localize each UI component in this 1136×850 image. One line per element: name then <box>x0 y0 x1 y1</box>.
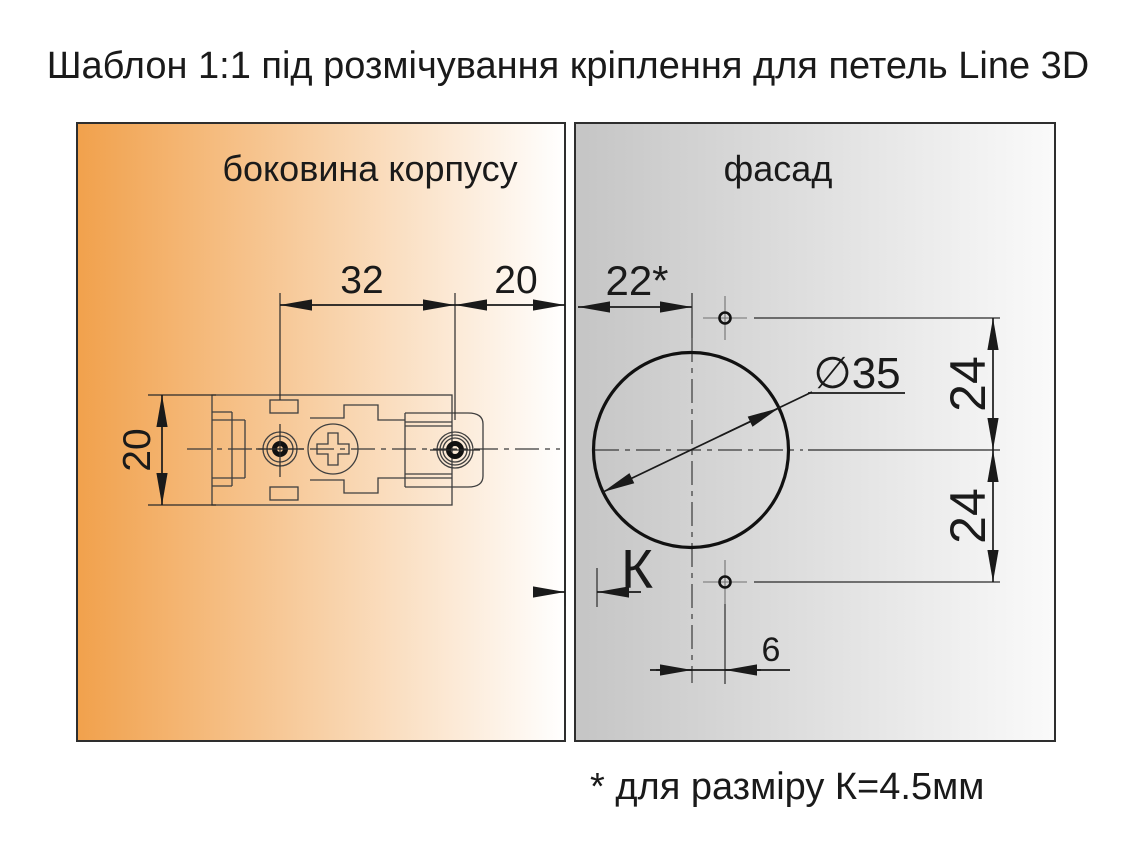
footnote: * для разміру К=4.5мм <box>590 766 984 808</box>
svg-text:32: 32 <box>340 259 383 302</box>
svg-text:24: 24 <box>940 488 996 544</box>
hinge-template-drawing: Шаблон 1:1 під розмічування кріплення дл… <box>0 0 1136 850</box>
facade-panel: фасад 22* ∅35 <box>534 123 1055 741</box>
svg-text:22*: 22* <box>605 257 668 304</box>
side-panel: боковина корпусу <box>77 123 565 741</box>
facade-panel-label: фасад <box>724 148 833 189</box>
page-title: Шаблон 1:1 під розмічування кріплення дл… <box>47 45 1090 87</box>
side-panel-label: боковина корпусу <box>222 148 517 189</box>
svg-text:20: 20 <box>116 428 159 471</box>
drawing-canvas: Шаблон 1:1 під розмічування кріплення дл… <box>0 0 1136 850</box>
facade-panel-surface <box>575 123 1055 741</box>
svg-text:∅35: ∅35 <box>813 349 900 398</box>
svg-text:20: 20 <box>494 259 537 302</box>
svg-text:К: К <box>621 538 653 600</box>
svg-text:6: 6 <box>762 631 781 669</box>
svg-text:24: 24 <box>940 356 996 412</box>
